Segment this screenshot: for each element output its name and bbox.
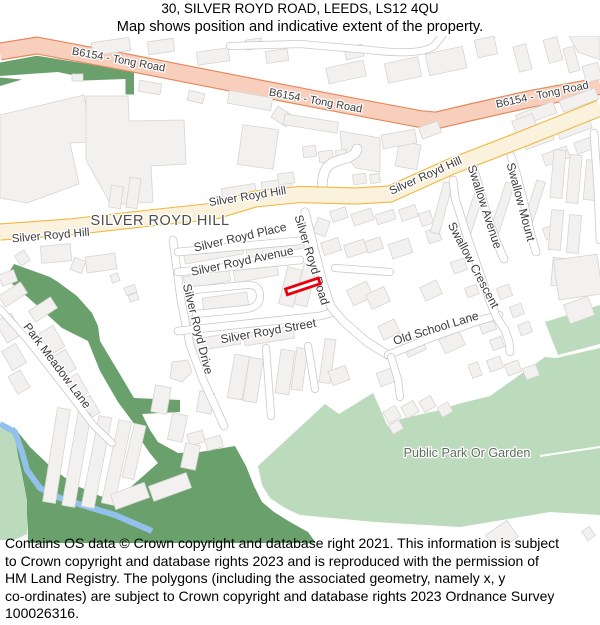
svg-text:SILVER ROYD HILL: SILVER ROYD HILL	[90, 213, 229, 229]
svg-text:Public Park Or Garden: Public Park Or Garden	[404, 446, 531, 460]
